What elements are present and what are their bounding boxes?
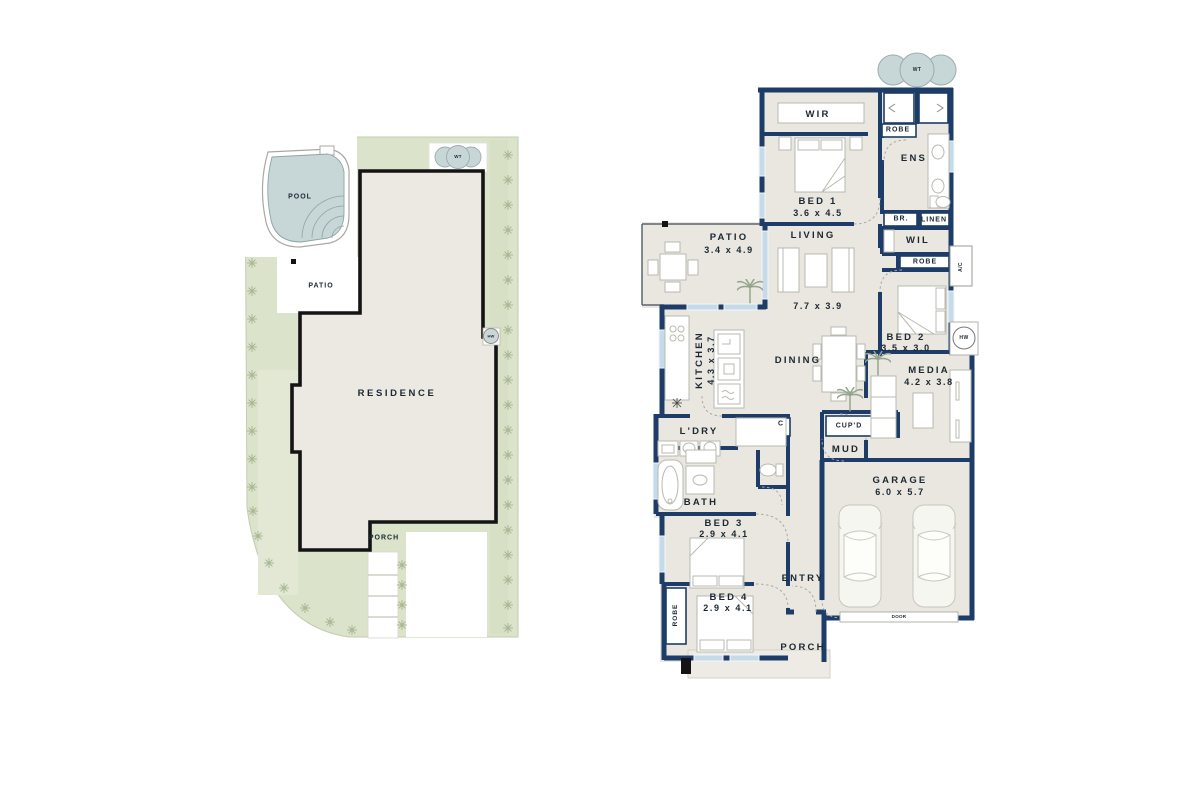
bed3-furniture (690, 538, 744, 588)
room-dining: DINING (775, 355, 821, 367)
room-robe-top: ROBE (886, 125, 910, 134)
floorplan-page: POOL WT PATIO RESIDENCE HW PORCH WT WIR … (0, 0, 1200, 800)
plan-drawing (0, 0, 1200, 800)
site-porch-label: PORCH (369, 533, 399, 542)
room-bed1-dims: 3.6 x 4.5 (793, 208, 842, 220)
room-kitchen-dims: 4.3 x 3.7 (706, 331, 718, 389)
room-ldry: L'DRY (680, 426, 719, 438)
room-living-dims: 7.7 x 3.9 (793, 301, 842, 313)
car-icon (838, 505, 882, 607)
room-wir: WIR (805, 109, 830, 121)
light-symbol (672, 398, 682, 408)
room-media: MEDIA (908, 365, 950, 377)
room-linen: LINEN (921, 215, 947, 224)
room-kitchen-name: KITCHEN (694, 331, 706, 389)
room-patio-dims: 3.4 x 4.9 (704, 245, 753, 257)
room-wil: WIL (906, 235, 930, 247)
room-bed4-dims: 2.9 x 4.1 (703, 603, 752, 615)
garage-door-label: DOOR (892, 614, 907, 620)
room-br: BR. (893, 214, 908, 223)
room-robe-bed4: ROBE (672, 604, 680, 627)
patio-slider-glass (762, 231, 768, 299)
ens-fixtures (928, 134, 950, 208)
site-wt-label: WT (454, 154, 462, 160)
room-media-dims: 4.2 x 3.8 (904, 377, 953, 389)
site-hw-label: HW (487, 333, 494, 338)
room-bed3-dims: 2.9 x 4.1 (699, 529, 748, 541)
fp-wt-label: WT (913, 67, 922, 74)
room-mud: MUD (832, 444, 860, 456)
site-plan (243, 133, 518, 638)
room-garage: GARAGE (873, 475, 928, 487)
site-patio-label: PATIO (308, 281, 333, 290)
car-icon (912, 505, 956, 607)
room-porch: PORCH (780, 642, 825, 654)
fp-hw-label: HW (959, 335, 968, 342)
room-patio: PATIO (710, 232, 749, 244)
room-closet-c: C (778, 419, 784, 428)
site-pool-label: POOL (288, 192, 312, 201)
driveway (368, 552, 398, 638)
front-yard-apron (406, 532, 487, 637)
bed2-furniture (898, 286, 946, 334)
porch-slab (688, 650, 830, 678)
room-bath: BATH (684, 497, 718, 509)
wil-shelf (884, 230, 894, 252)
room-kitchen: KITCHEN 4.3 x 3.7 (694, 331, 718, 389)
patio-post (291, 259, 296, 264)
room-garage-dims: 6.0 x 5.7 (875, 487, 924, 499)
room-entry: ENTRY (782, 573, 825, 585)
room-ens: ENS (901, 153, 927, 165)
room-cupd: CUP'D (836, 421, 863, 430)
room-bed2-dims: 3.5 x 3.0 (881, 343, 930, 355)
site-residence-label: RESIDENCE (358, 388, 437, 400)
room-bed1: BED 1 (799, 196, 838, 208)
room-robe-hall: ROBE (913, 257, 937, 266)
room-living: LIVING (791, 230, 836, 242)
living-furniture (778, 248, 854, 292)
room-ac: A/C (958, 262, 965, 272)
